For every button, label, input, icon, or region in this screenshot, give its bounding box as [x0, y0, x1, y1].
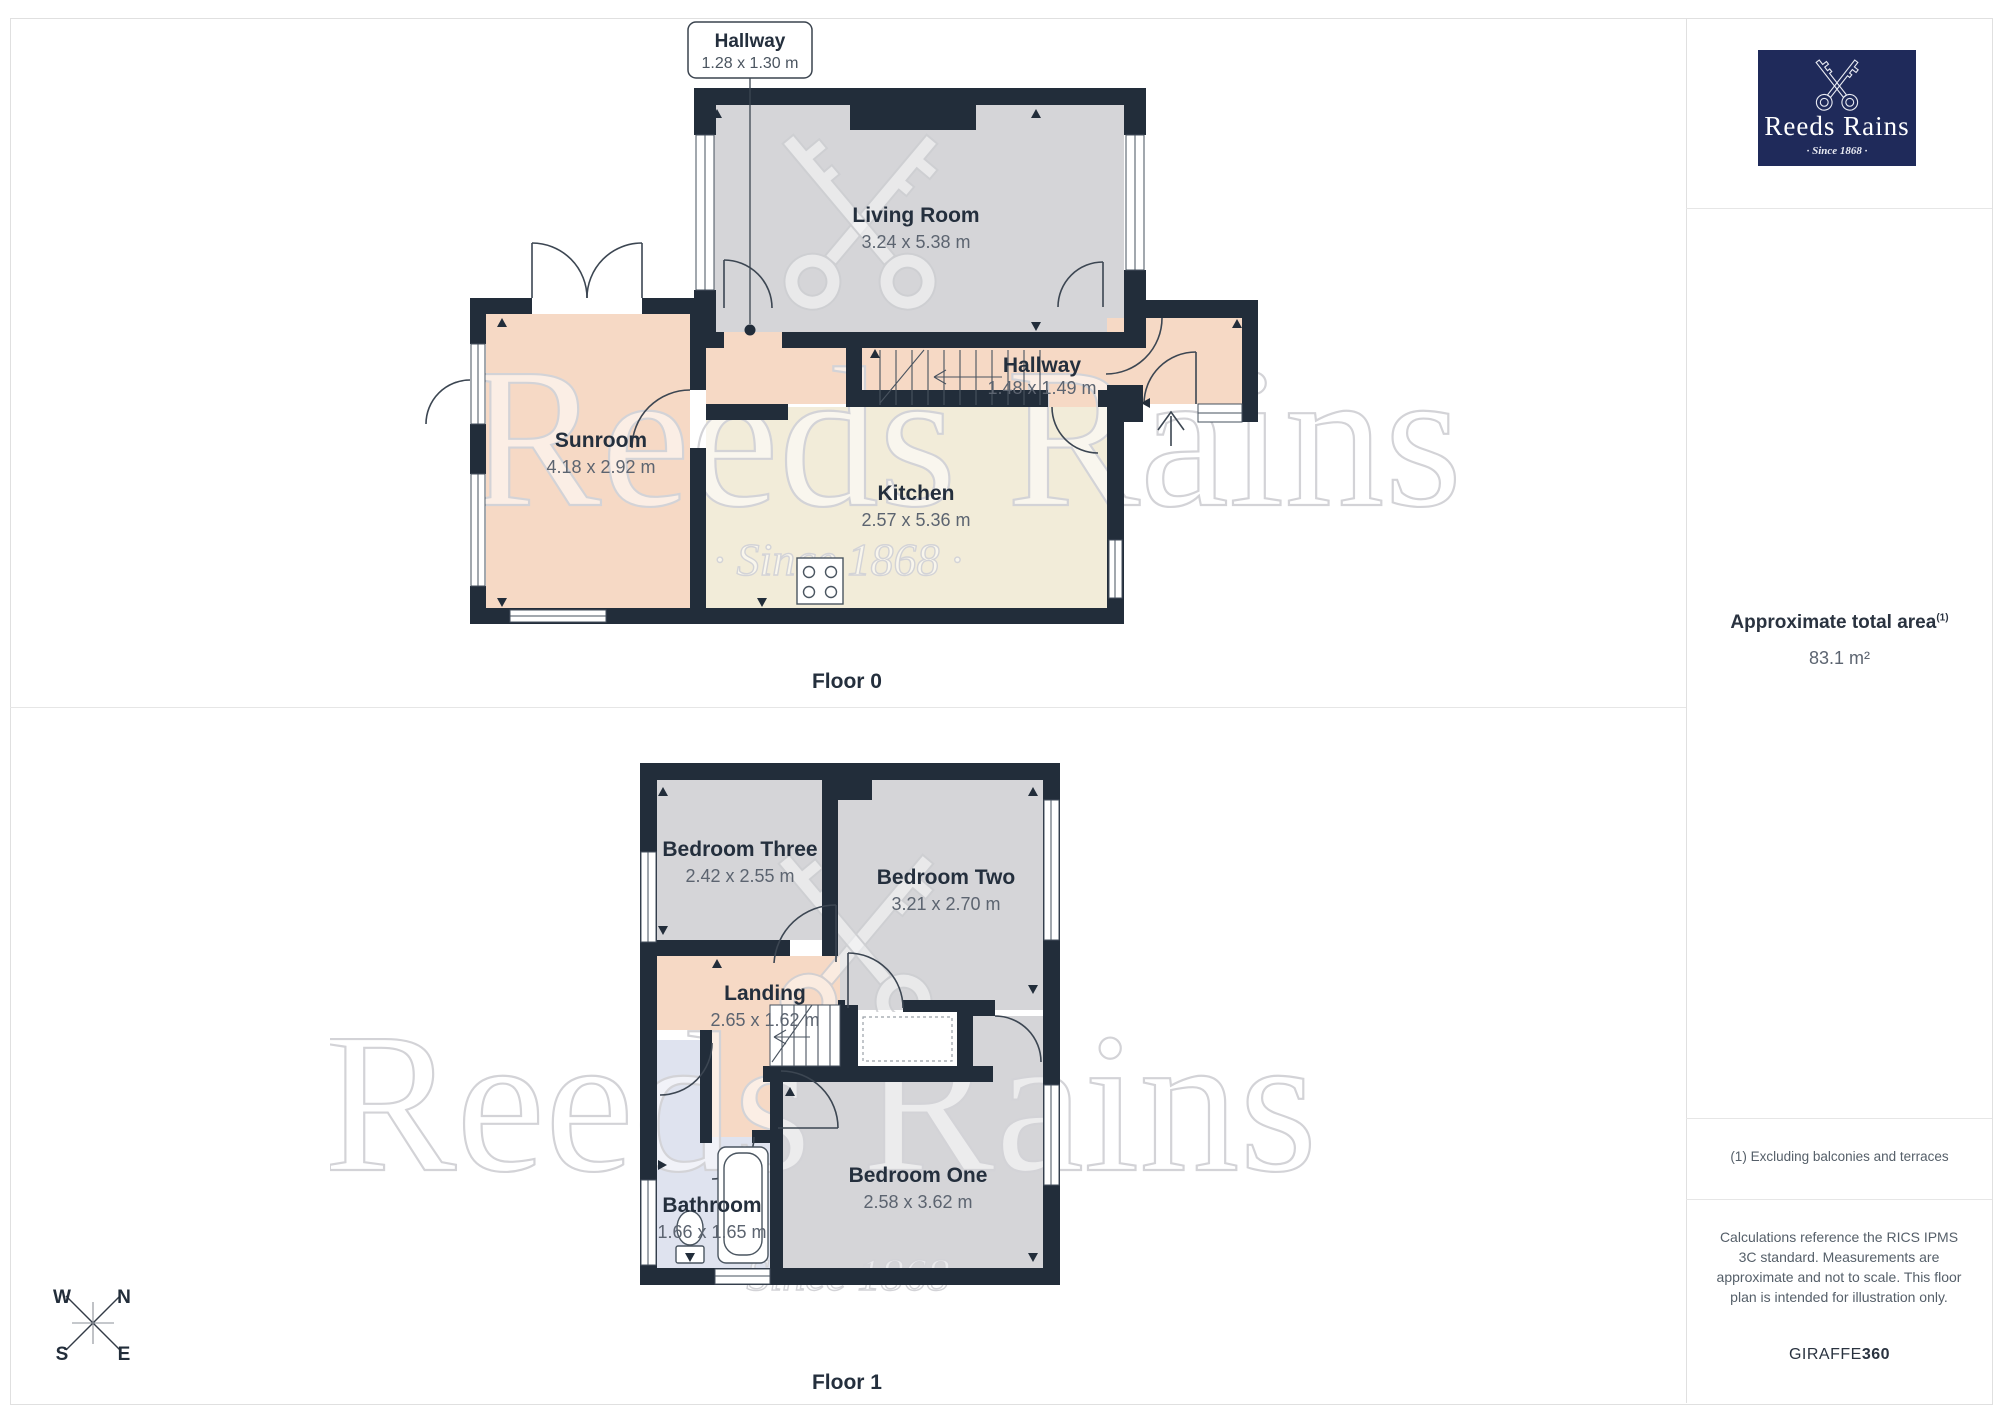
giraffe360-brand: GIRAFFE360 [1687, 1346, 1992, 1364]
page-border [10, 18, 1993, 1405]
sidebar-divider-top [1686, 208, 1992, 209]
logo-tagline: · Since 1868 · [1807, 145, 1868, 157]
disclaimer-text: Calculations reference the RICS IPMS 3C … [1712, 1227, 1966, 1307]
reeds-rains-logo: Reeds Rains · Since 1868 · [1758, 50, 1916, 166]
sidebar-divider-disclaimer [1686, 1199, 1992, 1200]
sidebar-divider [1686, 18, 1687, 1403]
floor-section-divider [10, 707, 1686, 708]
total-area-label: Approximate total area(1) [1687, 612, 1992, 634]
area-footnote-marker: (1) [1936, 613, 1948, 624]
logo-title: Reeds Rains [1764, 113, 1909, 140]
total-area-block: Approximate total area(1) 83.1 m² [1687, 612, 1992, 669]
sidebar-divider-footnote [1686, 1118, 1992, 1119]
footnote-text: (1) Excluding balconies and terraces [1687, 1149, 1992, 1164]
total-area-value: 83.1 m² [1687, 648, 1992, 669]
